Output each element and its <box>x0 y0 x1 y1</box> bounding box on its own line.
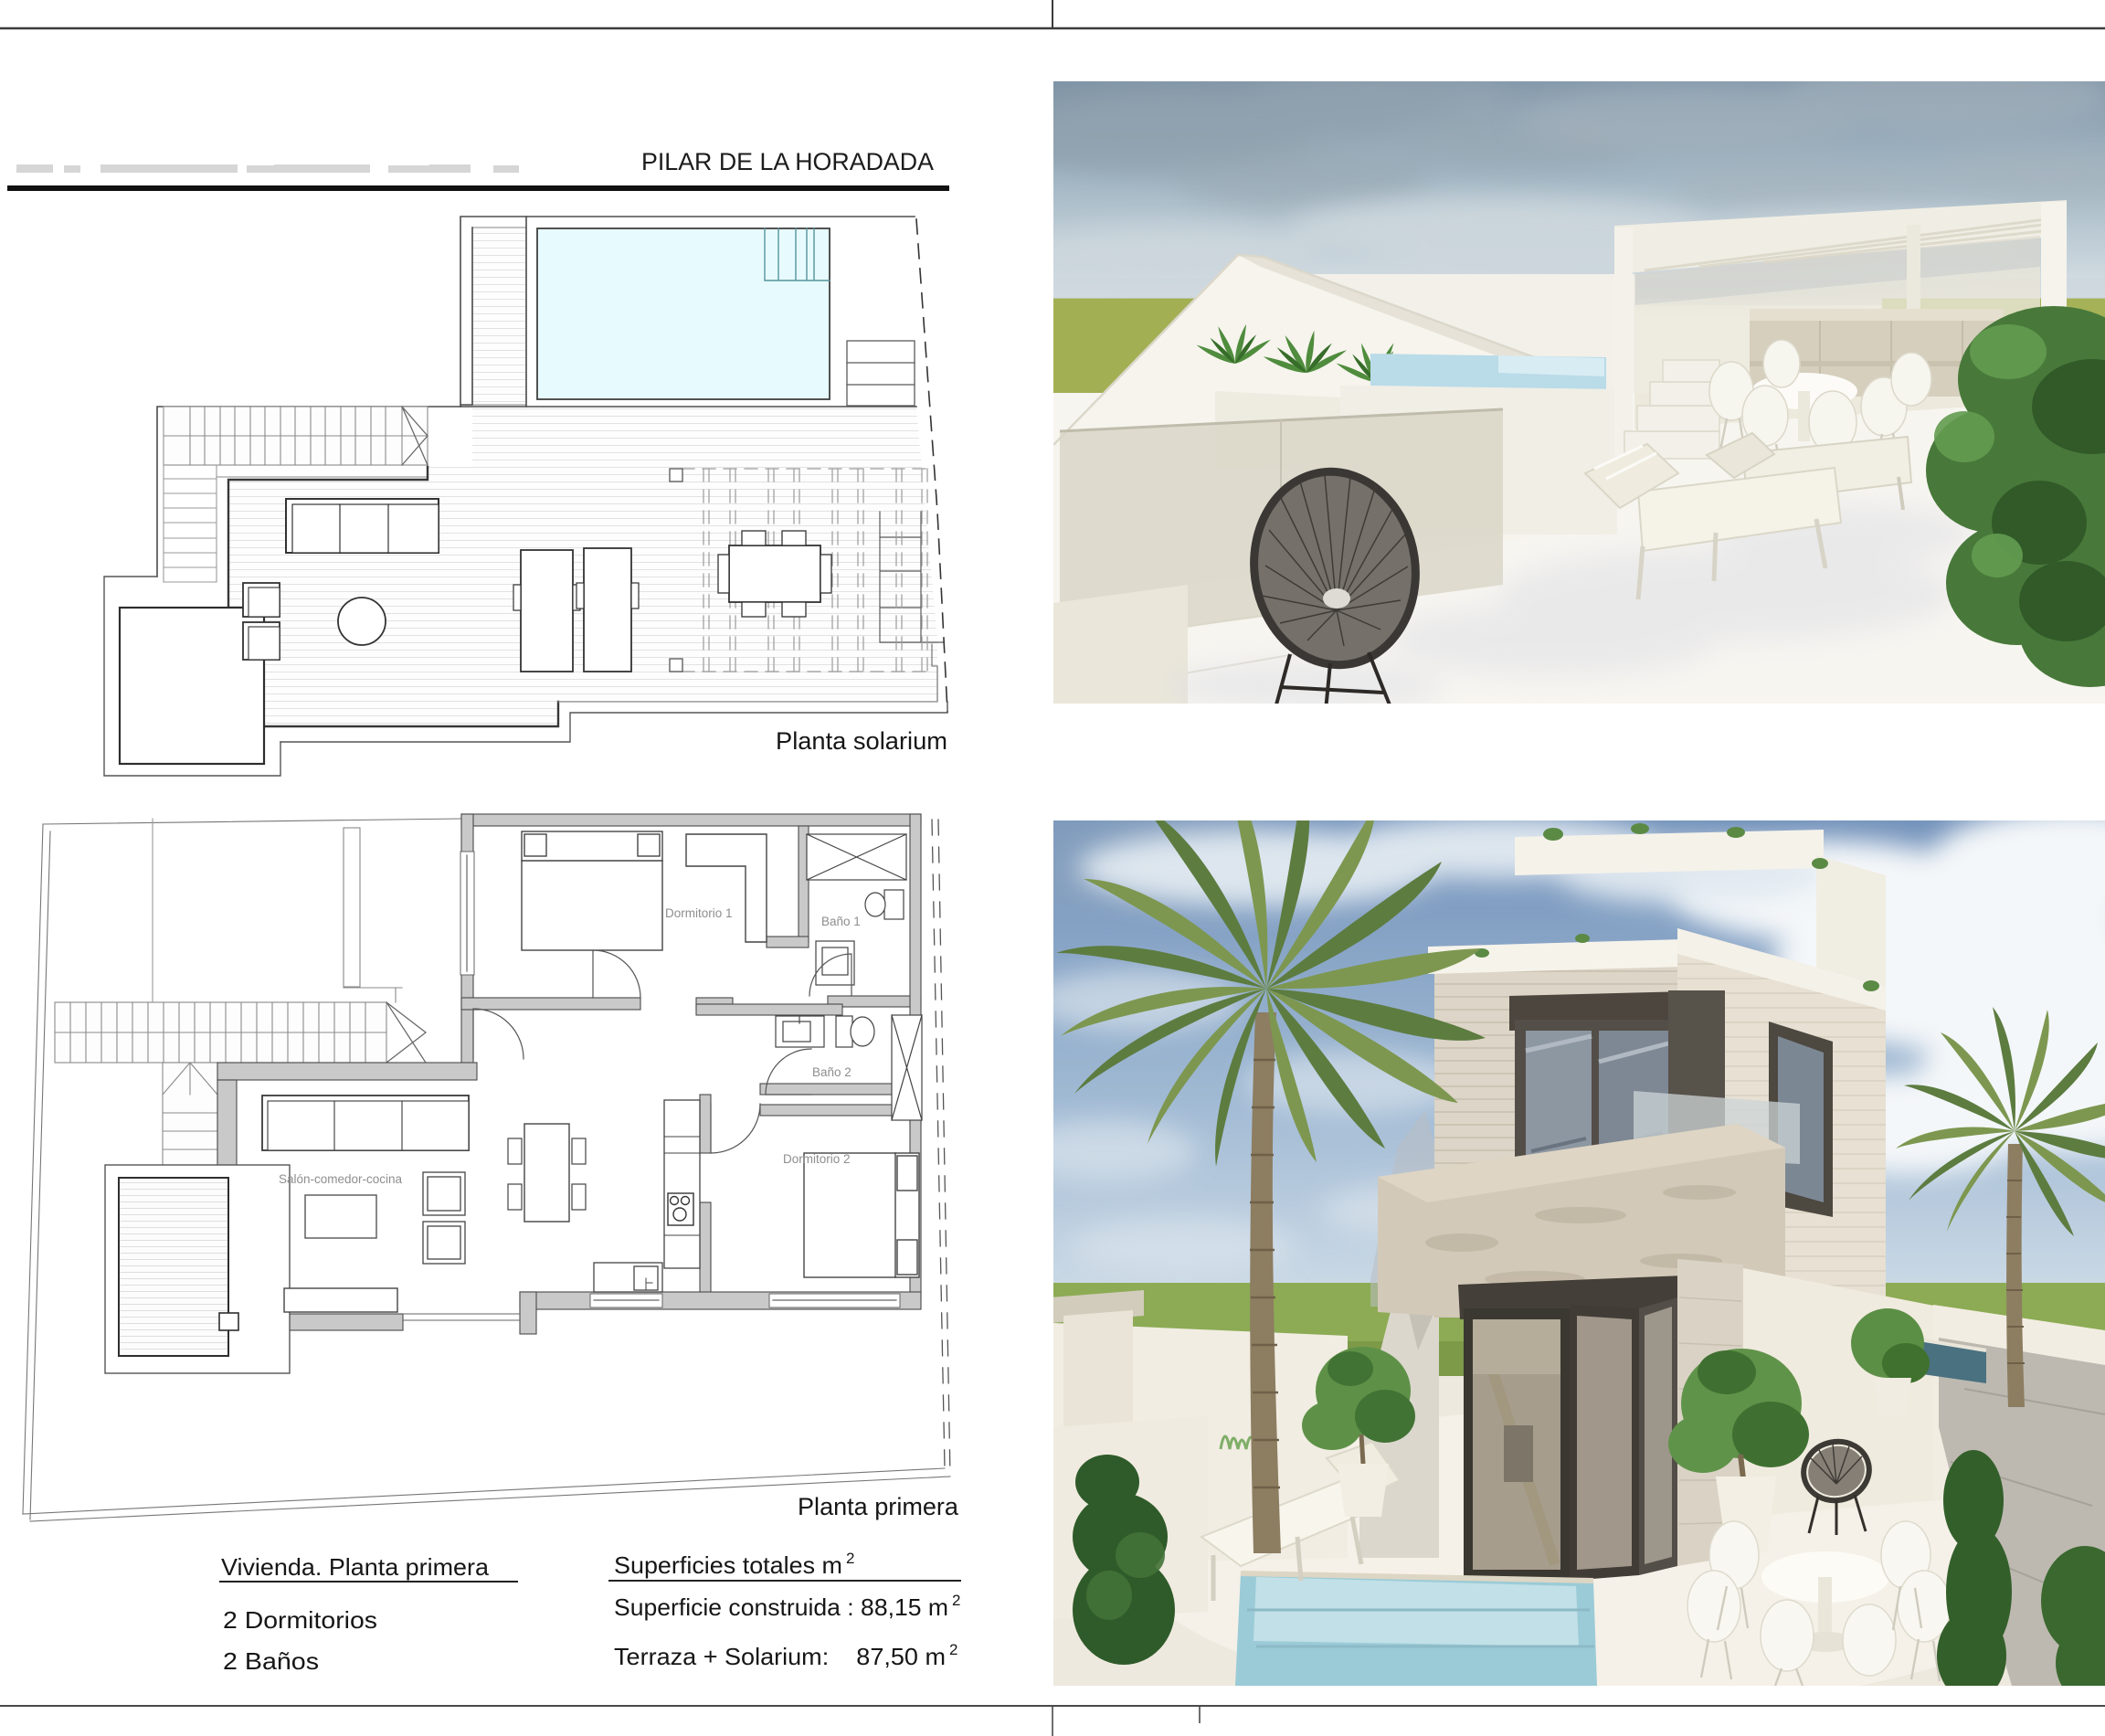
svg-text:Superficies totales m: Superficies totales m <box>614 1551 842 1579</box>
svg-text:2: 2 <box>949 1641 957 1658</box>
svg-text:Superficie construida : 88,15: Superficie construida : 88,15 m <box>614 1593 948 1621</box>
svg-text:Baño 2: Baño 2 <box>812 1065 852 1079</box>
svg-text:Vivienda. Planta primera: Vivienda. Planta primera <box>221 1553 490 1581</box>
svg-text:PILAR DE LA HORADADA: PILAR DE LA HORADADA <box>641 148 934 175</box>
svg-text:Dormitorio 2: Dormitorio 2 <box>783 1152 851 1166</box>
svg-text:Planta primera: Planta primera <box>798 1493 959 1520</box>
svg-text:Terraza + Solarium: 87,50 m: Terraza + Solarium: 87,50 m <box>614 1643 946 1670</box>
svg-text:2: 2 <box>952 1592 960 1609</box>
svg-text:2 Baños: 2 Baños <box>223 1647 319 1675</box>
svg-text:2: 2 <box>846 1550 854 1567</box>
svg-text:Salón-comedor-cocina: Salón-comedor-cocina <box>279 1172 403 1186</box>
svg-text:Planta solarium: Planta solarium <box>776 727 947 755</box>
svg-text:Dormitorio 1: Dormitorio 1 <box>665 906 733 920</box>
svg-text:2 Dormitorios: 2 Dormitorios <box>223 1606 377 1634</box>
svg-text:Baño 1: Baño 1 <box>821 915 861 928</box>
